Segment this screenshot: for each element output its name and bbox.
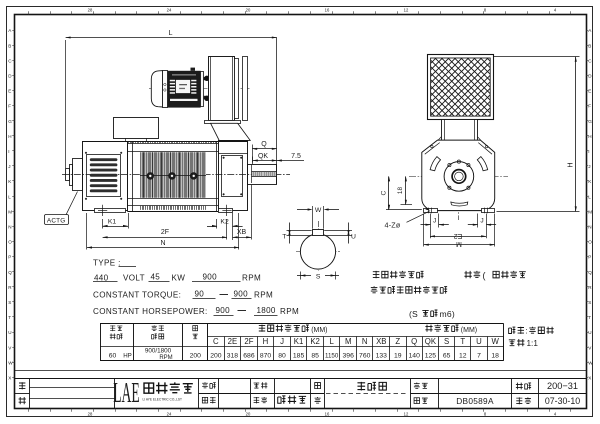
svg-text:N: N <box>588 225 591 230</box>
svg-text:ACTG: ACTG <box>47 218 66 225</box>
svg-text:S: S <box>444 337 449 346</box>
svg-text:900: 900 <box>234 289 249 298</box>
svg-text:QK: QK <box>425 337 437 346</box>
svg-text:24: 24 <box>167 7 172 12</box>
svg-text:B: B <box>588 43 591 48</box>
svg-text:CONSTANT HORSEPOWER:: CONSTANT HORSEPOWER: <box>93 307 208 316</box>
svg-text:19: 19 <box>394 353 402 360</box>
svg-text:760: 760 <box>359 353 371 360</box>
svg-text:L: L <box>329 337 334 346</box>
svg-text:E: E <box>588 89 591 94</box>
svg-text:870: 870 <box>260 353 272 360</box>
svg-text:E: E <box>8 89 11 94</box>
svg-text:U: U <box>588 330 591 335</box>
svg-text:28: 28 <box>88 7 93 12</box>
svg-text:X: X <box>8 376 11 381</box>
svg-text::: : <box>526 327 528 336</box>
svg-text:(MM): (MM) <box>311 327 327 334</box>
svg-text:K1: K1 <box>108 219 117 226</box>
svg-text:1800: 1800 <box>257 306 276 315</box>
svg-text:W: W <box>492 337 500 346</box>
svg-text:900/1800: 900/1800 <box>145 348 172 355</box>
svg-text:C: C <box>213 337 219 346</box>
svg-text:W: W <box>588 360 593 365</box>
svg-text:H: H <box>8 134 11 139</box>
svg-text:P: P <box>588 255 591 260</box>
svg-text:P: P <box>8 255 11 260</box>
svg-text:RPM: RPM <box>254 290 273 299</box>
svg-text:G: G <box>588 119 592 124</box>
svg-text:J: J <box>433 217 436 224</box>
svg-text:16: 16 <box>325 412 330 417</box>
svg-text:N: N <box>160 240 165 247</box>
svg-text:140: 140 <box>409 353 421 360</box>
svg-text:LAE: LAE <box>113 378 140 409</box>
svg-text:H: H <box>263 337 269 346</box>
svg-text:L: L <box>588 194 591 199</box>
svg-text:O: O <box>588 240 592 245</box>
svg-text:X: X <box>588 376 591 381</box>
svg-text:686: 686 <box>243 353 255 360</box>
svg-text:45: 45 <box>151 272 161 281</box>
svg-text:I: I <box>588 149 589 154</box>
svg-text:125: 125 <box>425 353 437 360</box>
svg-text:H: H <box>566 162 575 167</box>
svg-text:133: 133 <box>376 353 388 360</box>
svg-text:RPM: RPM <box>159 355 172 361</box>
svg-text:QK: QK <box>258 153 268 160</box>
svg-text:2F: 2F <box>244 337 253 346</box>
svg-text:J: J <box>280 337 284 346</box>
svg-text:12: 12 <box>459 353 467 360</box>
svg-text:4-Zø: 4-Zø <box>385 220 401 229</box>
svg-text:CONSTANT TORQUE:: CONSTANT TORQUE: <box>93 290 181 299</box>
svg-text:RPM: RPM <box>242 273 261 282</box>
svg-text:TYPE :: TYPE : <box>93 258 121 267</box>
svg-text:(S: (S <box>409 309 418 319</box>
svg-text:Q: Q <box>8 270 12 275</box>
svg-text:O: O <box>8 240 12 245</box>
svg-text:U: U <box>8 330 11 335</box>
svg-text:60: 60 <box>109 353 117 360</box>
svg-text:K2: K2 <box>220 219 229 226</box>
svg-text:T: T <box>588 315 591 320</box>
svg-text:J: J <box>8 164 10 169</box>
svg-text:24: 24 <box>167 412 172 417</box>
svg-text:Q: Q <box>261 141 267 148</box>
svg-text:M: M <box>8 209 12 214</box>
svg-text:2E: 2E <box>228 337 238 346</box>
svg-text:HP: HP <box>123 353 132 360</box>
svg-text:12: 12 <box>404 412 409 417</box>
svg-text:(: ( <box>483 271 486 281</box>
svg-text:S: S <box>8 300 11 305</box>
svg-text:M: M <box>345 337 352 346</box>
svg-text:200: 200 <box>190 353 202 360</box>
svg-text:LI AYE ELECTRIC CO.,LST: LI AYE ELECTRIC CO.,LST <box>143 398 182 402</box>
svg-text:65: 65 <box>443 353 451 360</box>
svg-text:W: W <box>8 360 13 365</box>
svg-text:N: N <box>362 337 368 346</box>
svg-text:(MM): (MM) <box>461 327 477 334</box>
svg-text:318: 318 <box>227 353 239 360</box>
svg-text:C: C <box>381 190 388 195</box>
svg-text:85: 85 <box>311 353 319 360</box>
svg-text:200−31: 200−31 <box>547 381 578 391</box>
svg-text:U: U <box>476 337 482 346</box>
svg-text:M: M <box>588 209 592 214</box>
svg-text:28: 28 <box>88 412 93 417</box>
svg-text:H: H <box>588 134 591 139</box>
svg-text:U: U <box>351 234 356 241</box>
svg-text:900: 900 <box>203 272 218 281</box>
svg-text:S: S <box>588 300 591 305</box>
svg-text:VOLT: VOLT <box>123 273 145 282</box>
svg-text:m6): m6) <box>440 309 455 319</box>
svg-text:J: J <box>588 164 590 169</box>
svg-text:90: 90 <box>195 289 205 298</box>
svg-text:1:1: 1:1 <box>527 339 539 348</box>
svg-text:1150: 1150 <box>325 353 339 360</box>
svg-text:16: 16 <box>325 7 330 12</box>
svg-text:W: W <box>315 207 322 214</box>
svg-text:440: 440 <box>94 273 109 282</box>
svg-text:L: L <box>169 28 173 37</box>
svg-text:Q: Q <box>411 337 417 346</box>
svg-text:900: 900 <box>216 306 231 315</box>
svg-text:E2: E2 <box>454 232 463 239</box>
svg-text:18: 18 <box>397 187 404 195</box>
svg-text:XB: XB <box>376 337 386 346</box>
svg-text:I: I <box>8 149 9 154</box>
svg-text:KW: KW <box>172 273 186 282</box>
svg-text:DB0589A: DB0589A <box>456 396 494 406</box>
svg-text:F: F <box>588 104 591 109</box>
svg-text:12: 12 <box>404 7 409 12</box>
svg-text:200: 200 <box>210 353 222 360</box>
svg-text:80: 80 <box>278 353 286 360</box>
svg-text:2F: 2F <box>161 229 169 236</box>
svg-text:K1: K1 <box>294 337 304 346</box>
svg-text:7: 7 <box>477 353 481 360</box>
svg-text:T: T <box>8 315 11 320</box>
svg-text:J: J <box>480 217 483 224</box>
svg-text:07-30-10: 07-30-10 <box>545 396 580 406</box>
svg-text:T: T <box>460 337 465 346</box>
svg-text:396: 396 <box>343 353 355 360</box>
svg-text:S: S <box>316 273 321 280</box>
svg-text:18: 18 <box>491 353 499 360</box>
svg-text:RPM: RPM <box>280 307 299 316</box>
svg-text:G: G <box>8 119 12 124</box>
svg-text:T: T <box>282 234 286 241</box>
svg-text:Z: Z <box>395 337 400 346</box>
svg-text:Q: Q <box>588 270 592 275</box>
svg-text:20: 20 <box>246 412 251 417</box>
svg-text:M: M <box>456 240 462 247</box>
svg-text:N: N <box>8 225 11 230</box>
svg-text:20: 20 <box>246 7 251 12</box>
svg-text:185: 185 <box>293 353 305 360</box>
svg-text:B: B <box>8 43 11 48</box>
svg-text:7.5: 7.5 <box>291 153 301 160</box>
svg-text:K2: K2 <box>310 337 320 346</box>
svg-text:L: L <box>8 194 11 199</box>
svg-text:F: F <box>8 104 11 109</box>
